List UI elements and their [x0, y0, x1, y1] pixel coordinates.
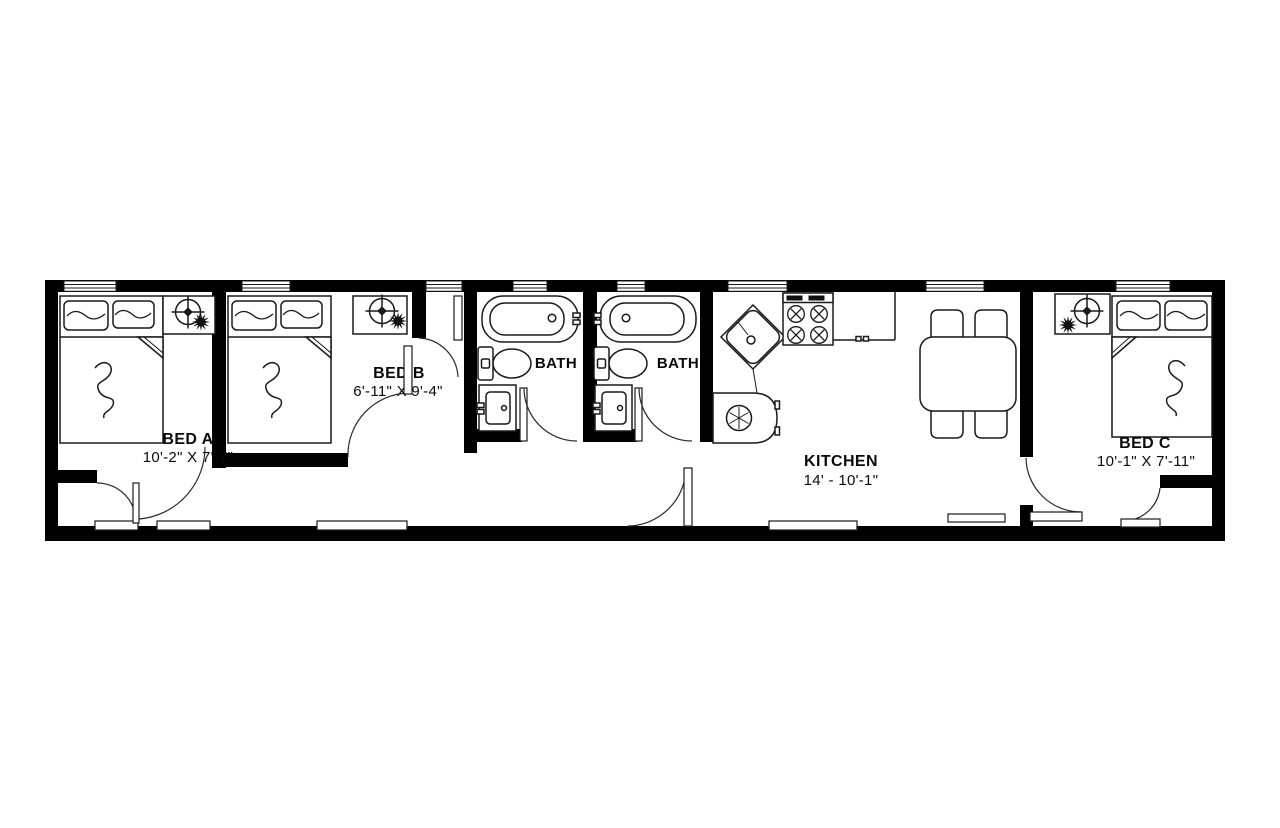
kitchen: KITCHEN 14' - 10'-1": [713, 292, 1016, 489]
door-swing-corridor: [628, 468, 692, 526]
chair-icon: [931, 310, 963, 337]
toilet-icon: [478, 347, 531, 380]
sill: [948, 514, 1005, 522]
wall-bedc-stub: [1160, 475, 1212, 488]
nightstand-icon: [1055, 294, 1110, 334]
vanity-sink-icon: [593, 385, 632, 431]
sill: [769, 521, 857, 530]
door-swing-kitchen-bed-c: [1026, 458, 1082, 521]
bed-icon: [1112, 296, 1212, 437]
bed-icon: [60, 296, 163, 443]
faucet-icon: [573, 313, 580, 318]
bed-icon: [228, 296, 331, 443]
wall-right: [1212, 280, 1225, 541]
sill: [317, 521, 407, 530]
chair-icon: [975, 310, 1007, 337]
bath-2: BATH: [593, 296, 699, 431]
window: [64, 281, 116, 292]
sill: [157, 521, 210, 530]
door-swing-bath-2: [635, 388, 692, 441]
wall-kitchen-bedc: [1020, 292, 1033, 457]
chair-icon: [975, 411, 1007, 438]
window: [513, 281, 547, 292]
dining-table-icon: [920, 310, 1016, 438]
nightstand-icon: [163, 296, 215, 335]
bedroom-c: BED C 10'-1" X 7'-11": [1055, 294, 1212, 470]
counter: [833, 292, 895, 341]
vanity-sink-icon: [477, 385, 516, 431]
stove-control: [809, 296, 825, 301]
window: [426, 281, 462, 292]
toilet-icon: [594, 347, 647, 380]
window: [1116, 281, 1170, 292]
wall-bath1-left: [464, 292, 477, 453]
bathtub-icon: [594, 296, 696, 342]
window: [926, 281, 984, 292]
window: [242, 281, 290, 292]
nightstand-icon: [353, 295, 407, 335]
room-label: BED B: [373, 365, 425, 382]
chair-icon: [931, 411, 963, 438]
window: [728, 281, 787, 292]
room-label: BED C: [1119, 435, 1171, 452]
bedroom-a: BED A 10'-2" X 7'-7": [60, 296, 233, 467]
wall-left: [45, 280, 58, 541]
door-swing-bath-1: [520, 388, 577, 441]
kitchen-sink-icon: [721, 305, 785, 393]
room-label: BED A: [162, 431, 213, 448]
faucet-icon: [477, 403, 484, 408]
wall-corridor-stub: [57, 470, 97, 483]
room-dimensions: 10'-2" X 7'-7": [143, 449, 234, 466]
wall-bottom: [45, 526, 1225, 541]
window: [617, 281, 645, 292]
door-swing-bed-b: [348, 346, 412, 457]
room-label: BATH: [535, 355, 577, 372]
bathtub-icon: [482, 296, 580, 342]
wall-bath2-right: [700, 292, 713, 442]
room-label: BATH: [657, 355, 699, 372]
stove-control: [787, 296, 803, 301]
door-swing-bed-c: [1121, 488, 1160, 527]
room-dimensions: 14' - 10'-1": [804, 472, 879, 489]
stove-icon: [783, 293, 833, 345]
room-dimensions: 6'-11" X 9'-4": [353, 383, 443, 400]
wall-bedb-stub: [412, 292, 426, 338]
faucet-icon: [593, 403, 600, 408]
floor-plan: BED A 10'-2" X 7'-7" BED B 6'-11" X 9'-4…: [0, 0, 1280, 828]
room-label: KITCHEN: [804, 453, 878, 470]
room-dimensions: 10'-1" X 7'-11": [1097, 453, 1195, 470]
faucet-icon: [594, 313, 601, 318]
refrigerator-icon: [713, 393, 780, 443]
sill: [95, 521, 138, 530]
floor-plan-page: BED A 10'-2" X 7'-7" BED B 6'-11" X 9'-4…: [0, 0, 1280, 828]
